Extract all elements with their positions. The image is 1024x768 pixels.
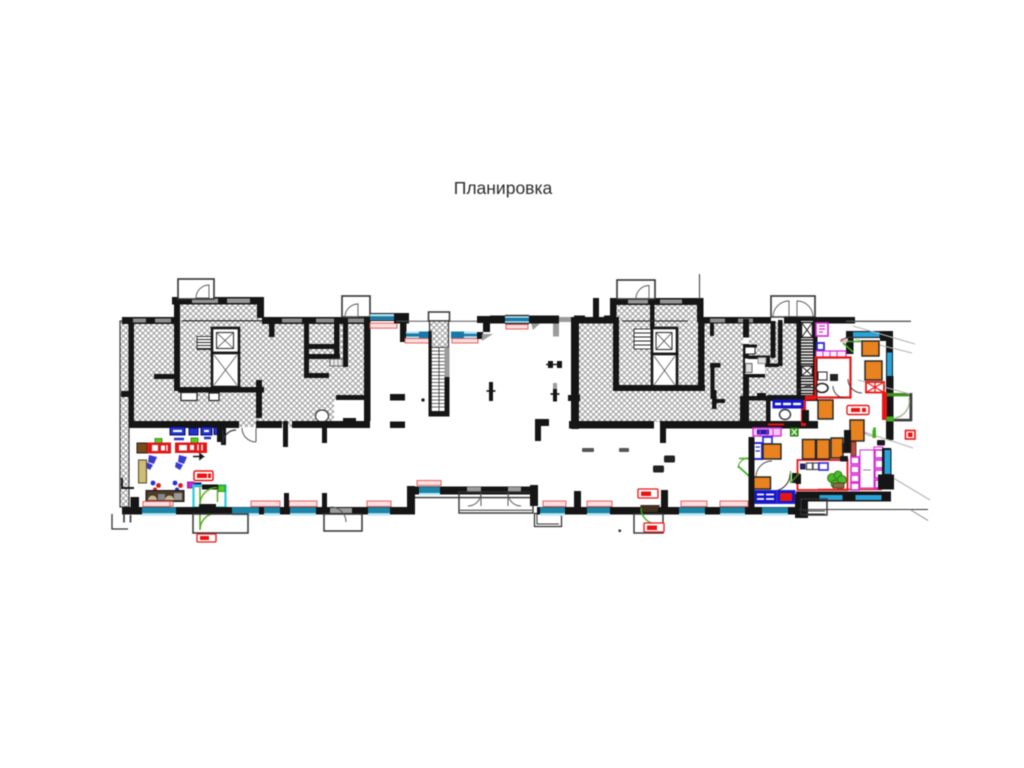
svg-text:Планировка: Планировка xyxy=(454,178,553,198)
